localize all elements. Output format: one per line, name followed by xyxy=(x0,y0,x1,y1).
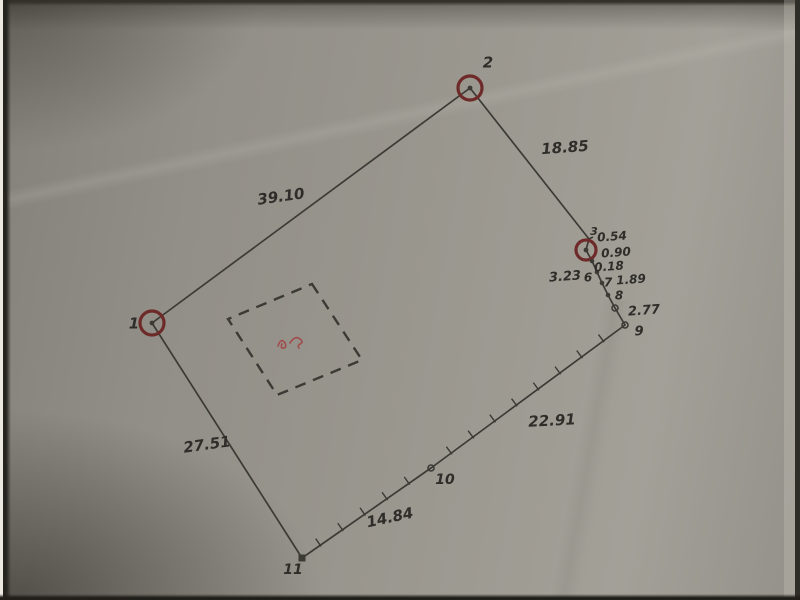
photo-edge-right xyxy=(795,0,800,600)
distance-label-22.91: 22.91 xyxy=(528,410,576,430)
distance-label-18.85: 18.85 xyxy=(541,137,590,158)
hatch-tick xyxy=(555,367,561,375)
point-marker-4 xyxy=(584,248,589,253)
hatch-tick xyxy=(468,431,474,439)
distance-label-1.89: 1.89 xyxy=(616,271,647,287)
hatch-tick xyxy=(577,351,583,359)
photo-edge-bottom xyxy=(0,594,800,600)
point-label-9: 9 xyxy=(634,325,643,340)
distance-label-3.23: 3.23 xyxy=(548,268,581,285)
point-label-10: 10 xyxy=(435,472,455,488)
point-marker-8 xyxy=(606,293,611,298)
hatch-tick xyxy=(404,477,409,485)
hatch-tick xyxy=(599,335,605,343)
hatch-tick xyxy=(338,523,343,531)
red-ink-annotation xyxy=(278,338,302,349)
photo-edge-top xyxy=(0,0,800,6)
hatch-tick xyxy=(512,399,518,407)
point-marker-1 xyxy=(150,321,155,326)
hatch-tick xyxy=(316,539,321,547)
point-label-7: 7 xyxy=(604,276,613,290)
point-marker-2 xyxy=(468,86,473,91)
distance-label-0.18: 0.18 xyxy=(594,258,625,274)
point-label-1: 1 xyxy=(129,315,139,333)
photo-edge-right-highlight xyxy=(784,0,795,600)
distance-label-0.54: 0.54 xyxy=(597,228,628,244)
boundary-line-9-10 xyxy=(431,325,625,468)
hatch-tick xyxy=(382,492,387,500)
point-label-2: 2 xyxy=(483,54,493,72)
point-marker-11 xyxy=(299,555,306,562)
hatch-tick xyxy=(446,447,452,455)
boundary-line-1-2 xyxy=(152,88,470,323)
point-label-6: 6 xyxy=(584,271,592,285)
distance-label-39.10: 39.10 xyxy=(256,184,305,208)
distance-label-27.51: 27.51 xyxy=(182,432,231,456)
point-label-11: 11 xyxy=(283,562,302,578)
hatch-tick xyxy=(490,415,496,423)
hatch-tick xyxy=(533,383,539,391)
photo-edge-left xyxy=(3,0,11,600)
dashed-building-outline xyxy=(228,284,362,395)
boundary-line-2-3 xyxy=(470,88,589,239)
scanned-survey-plan-photo: 1236789101139.1018.850.540.900.183.231.8… xyxy=(0,0,800,600)
point-label-8: 8 xyxy=(615,289,623,303)
survey-plan-drawing: 1236789101139.1018.850.540.900.183.231.8… xyxy=(0,0,800,600)
distance-label-2.77: 2.77 xyxy=(627,302,661,319)
